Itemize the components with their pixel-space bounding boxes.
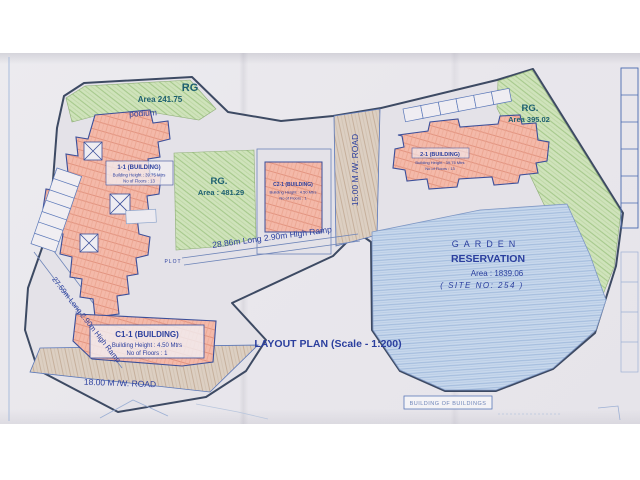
plan-drawing: RG Area 241.75 podium 1-1 (BUILDING) Bui… (0, 0, 640, 480)
building-1-1-floors: No of Floors : 13 (123, 179, 155, 184)
plot-label: PLOT (164, 259, 181, 265)
building-1-1-name: 1-1 (BUILDING) (117, 165, 160, 171)
building-c2-1-height: Building Height : 4.50 Mtrs (270, 190, 317, 195)
bottom-sketch-fragments (100, 400, 620, 420)
rg-top-left-label: RG (182, 82, 199, 94)
garden-word: GARDEN (452, 239, 521, 249)
rg-top-left-area: Area 241.75 (138, 95, 183, 104)
garden-reservation-area (372, 204, 606, 390)
podium-label: podium (129, 107, 157, 118)
scanned-layout-plan: RG Area 241.75 podium 1-1 (BUILDING) Bui… (0, 0, 640, 480)
rg-right-label: RG. (522, 103, 539, 114)
reservation-word: RESERVATION (451, 253, 525, 265)
building-2-1-name: 2-1 (BUILDING) (420, 152, 460, 158)
road-15m-label: 15.00 M /W. ROAD (350, 134, 360, 206)
garden-area-value: Area : 1839.06 (471, 269, 524, 278)
building-c1-1-height: Building Height : 4.50 Mtrs (112, 343, 182, 349)
rg-right-area: Area 395.02 (508, 115, 550, 124)
building-c1-1-name: C1-1 (BUILDING) (115, 330, 179, 339)
plan-title: LAYOUT PLAN (Scale - 1:200) (254, 338, 401, 350)
rg-center-label: RG. (211, 176, 228, 187)
building-c1-1-floors: No of Floors : 1 (126, 351, 168, 357)
right-edge-table-fragment (621, 68, 638, 372)
rg-center-area: Area : 481.29 (198, 188, 244, 197)
building-2-1-floors: No of Floors : 13 (425, 166, 455, 171)
building-2-1-height: Building Height : 39.75 Mtrs (415, 160, 464, 165)
building-c2-1-name: C2-1 (BUILDING) (273, 182, 313, 188)
building-c2-1-floors: No of Floors : 1 (279, 196, 307, 201)
utility-block (126, 209, 157, 224)
footer-label-text: BUILDING OF BUILDINGS (410, 401, 487, 407)
building-1-1-height: Building Height : 39.75 Mtrs (113, 173, 166, 178)
garden-site-no: ( SITE NO: 254 ) (440, 281, 524, 290)
